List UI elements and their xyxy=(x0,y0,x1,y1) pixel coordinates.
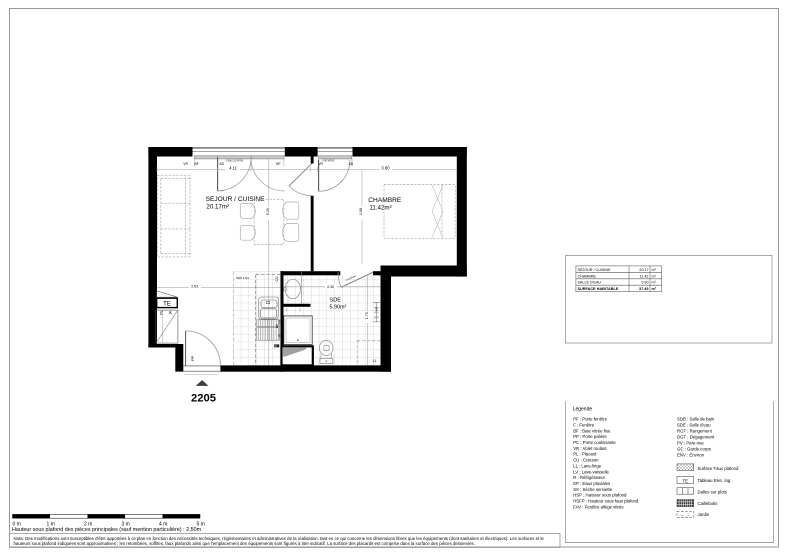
svg-text:EP: EP xyxy=(275,324,279,328)
svg-text:CHAMBRE: CHAMBRE xyxy=(578,274,597,278)
svg-text:2205: 2205 xyxy=(191,392,216,404)
svg-text:5.90m²: 5.90m² xyxy=(330,304,347,310)
svg-text:HSFP : Hauteur sous faux plafo: HSFP : Hauteur sous faux plafond xyxy=(573,499,639,504)
svg-text:VR: VR xyxy=(318,162,323,166)
svg-text:2.88: 2.88 xyxy=(359,208,363,215)
svg-text:CHAMBRE: CHAMBRE xyxy=(368,197,402,204)
svg-text:LV : Lave-vaisselle: LV : Lave-vaisselle xyxy=(573,469,609,474)
svg-text:Hauteur sous plafond des pièce: Hauteur sous plafond des pièces principa… xyxy=(12,527,202,533)
svg-text:SURFACE HABITABLE: SURFACE HABITABLE xyxy=(578,287,619,291)
svg-text:VR : Volet roulant: VR : Volet roulant xyxy=(573,446,607,451)
svg-text:Tableau Elec. log.: Tableau Elec. log. xyxy=(698,478,732,483)
svg-text:5.26: 5.26 xyxy=(266,208,270,215)
svg-text:SALLE D'EAU: SALLE D'EAU xyxy=(578,281,602,285)
svg-text:TE: TE xyxy=(163,302,171,308)
svg-text:20.17: 20.17 xyxy=(639,268,648,272)
svg-text:hauteurs sous plafond indiquée: hauteurs sous plafond indiquées sont app… xyxy=(14,541,475,546)
svg-text:TE: TE xyxy=(682,479,688,484)
svg-text:R : Réfrigérateur: R : Réfrigérateur xyxy=(573,475,605,480)
svg-text:2.63: 2.63 xyxy=(191,284,198,288)
svg-text:HSFP 2.20m: HSFP 2.20m xyxy=(236,278,249,280)
svg-text:m²: m² xyxy=(652,268,657,272)
svg-text:Caillebotis: Caillebotis xyxy=(698,501,718,506)
svg-text:PC : Porte coulissante: PC : Porte coulissante xyxy=(573,440,616,445)
svg-text:37.49: 37.49 xyxy=(639,287,649,291)
svg-text:SDE : Salle d'eau: SDE : Salle d'eau xyxy=(677,423,711,428)
svg-text:HSP : Hauteur sous plafond: HSP : Hauteur sous plafond xyxy=(573,493,627,498)
svg-text:Surface Faux plafond: Surface Faux plafond xyxy=(698,466,739,471)
svg-text:3.80: 3.80 xyxy=(381,165,390,170)
svg-text:DGT : Dégagement: DGT : Dégagement xyxy=(677,435,715,440)
svg-text:PP: PP xyxy=(191,355,195,361)
svg-text:1.70: 1.70 xyxy=(365,312,369,319)
svg-text:SÉJOUR / CUISINE: SÉJOUR / CUISINE xyxy=(578,267,612,272)
svg-text:11.42: 11.42 xyxy=(640,274,649,278)
svg-text:11: 11 xyxy=(373,359,377,363)
svg-text:AD: AD xyxy=(219,162,224,166)
svg-text:2.30: 2.30 xyxy=(327,285,334,289)
svg-text:4.11: 4.11 xyxy=(229,165,238,170)
svg-text:Légende: Légende xyxy=(573,407,593,413)
svg-text:LL : Lave-linge: LL : Lave-linge xyxy=(573,463,602,468)
svg-text:Dalles sur plots: Dalles sur plots xyxy=(698,490,727,495)
svg-text:m²: m² xyxy=(652,287,657,291)
svg-text:EP : Eaux pluviales: EP : Eaux pluviales xyxy=(573,481,610,486)
svg-text:20.17m²: 20.17m² xyxy=(206,203,229,210)
svg-text:FAV : Fenêtre allège vitrée: FAV : Fenêtre allège vitrée xyxy=(573,504,624,509)
svg-text:m²: m² xyxy=(652,281,657,285)
svg-text:SS: SS xyxy=(374,307,378,311)
svg-text:SDB : Salle de bain: SDB : Salle de bain xyxy=(677,417,715,422)
svg-text:CU : Cuisson: CU : Cuisson xyxy=(573,458,599,463)
svg-text:PL : Placard: PL : Placard xyxy=(573,452,597,457)
svg-text:PL: PL xyxy=(160,310,164,314)
svg-text:PV : Pare-vue: PV : Pare-vue xyxy=(677,441,704,446)
svg-text:BF: BF xyxy=(195,162,199,166)
svg-text:PF : Porte fenêtre: PF : Porte fenêtre xyxy=(573,417,608,422)
svg-text:VR: VR xyxy=(183,162,188,166)
svg-text:PP : Porte palière: PP : Porte palière xyxy=(573,434,607,439)
svg-text:AD: AD xyxy=(349,162,354,166)
svg-text:GC : Garde-corps: GC : Garde-corps xyxy=(677,447,711,452)
svg-text:ENV : Environ: ENV : Environ xyxy=(677,453,705,458)
svg-text:SDE: SDE xyxy=(330,298,342,304)
svg-text:SS : Sèche serviette: SS : Sèche serviette xyxy=(573,487,613,492)
svg-text:0.90x2.15 VR 90: 0.90x2.15 VR 90 xyxy=(226,161,244,163)
svg-text:60: 60 xyxy=(169,311,173,315)
svg-text:0.90 VR 90: 0.90 VR 90 xyxy=(323,161,335,163)
svg-text:CU: CU xyxy=(275,276,279,281)
svg-text:5.90: 5.90 xyxy=(641,281,648,285)
svg-text:BF : Baie vitrée fixe: BF : Baie vitrée fixe xyxy=(573,428,611,433)
svg-text:Jardin: Jardin xyxy=(698,512,710,517)
svg-text:m²: m² xyxy=(652,274,657,278)
svg-text:BF: BF xyxy=(276,162,280,166)
svg-text:F : Fenêtre: F : Fenêtre xyxy=(573,423,595,428)
svg-text:11.42m²: 11.42m² xyxy=(369,204,391,211)
svg-text:RGT : Rangement: RGT : Rangement xyxy=(677,429,713,434)
